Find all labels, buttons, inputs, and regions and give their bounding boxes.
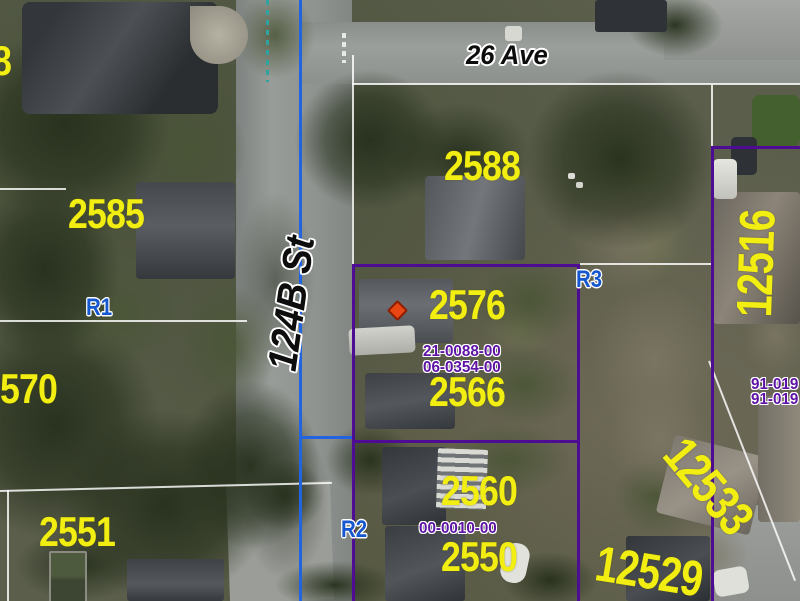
hedge-top-right [752, 95, 800, 147]
permit-label-right-2: 91-019 [751, 392, 798, 408]
address-label-partial-top-left: 8 [0, 40, 11, 82]
address-label-2588: 2588 [444, 145, 520, 187]
parcel-line-left-mid [0, 320, 247, 322]
patio-top-left [190, 6, 248, 64]
trailer-2576 [348, 325, 415, 355]
parcel-line-26ave-frontage [352, 83, 800, 85]
address-label-2566: 2566 [429, 371, 505, 413]
zone-label-r3: R3 [576, 268, 602, 292]
parcel-line-12516-west [711, 85, 713, 147]
vehicle-van-white [713, 159, 737, 199]
vehicle-car-white-26ave [505, 26, 522, 41]
zone-label-r1: R1 [86, 296, 112, 320]
address-label-2551: 2551 [39, 511, 115, 553]
road-marking-stop-bar [342, 33, 346, 63]
parcel-boundary-2576-east [577, 264, 580, 601]
address-label-2550: 2550 [441, 536, 517, 578]
permit-label-00-0010-00: 00-0010-00 [419, 521, 497, 537]
parcel-boundary-12516-north [711, 146, 800, 149]
permit-label-06-0354-00: 06-0354-00 [423, 360, 501, 376]
house-roof-2585 [136, 182, 235, 279]
parcel-line-124b-east [352, 55, 354, 265]
parcel-line-2551-west [7, 490, 9, 601]
parcel-boundary-2576-west [352, 264, 355, 601]
house-roof-top-left [22, 2, 218, 114]
parcel-line-2588-south [580, 263, 711, 265]
garden-beds-2551 [49, 551, 87, 601]
address-label-12516: 12516 [729, 209, 783, 318]
address-label-2576: 2576 [429, 284, 505, 326]
dashed-utility-line [266, 0, 269, 82]
address-label-2585: 2585 [68, 193, 144, 235]
parcel-line-left-top [0, 188, 66, 190]
parcel-boundary-2576-north [352, 264, 580, 267]
lawn-chairs-2588 [568, 173, 575, 179]
zone-label-r2: R2 [341, 518, 367, 542]
house-roof-2551 [127, 559, 224, 601]
building-top-right [595, 0, 667, 32]
centerline-spur [300, 436, 352, 439]
parcel-boundary-2566-south [352, 440, 580, 443]
address-label-partial-mid-left: 570 [0, 368, 57, 410]
permit-label-21-0088-00: 21-0088-00 [423, 344, 501, 360]
address-label-2560: 2560 [441, 470, 517, 512]
street-label-26ave: 26 Ave [466, 42, 548, 69]
aerial-map-viewport[interactable]: 26 Ave 124B St 8 2585 2588 2576 2566 256… [0, 0, 800, 601]
